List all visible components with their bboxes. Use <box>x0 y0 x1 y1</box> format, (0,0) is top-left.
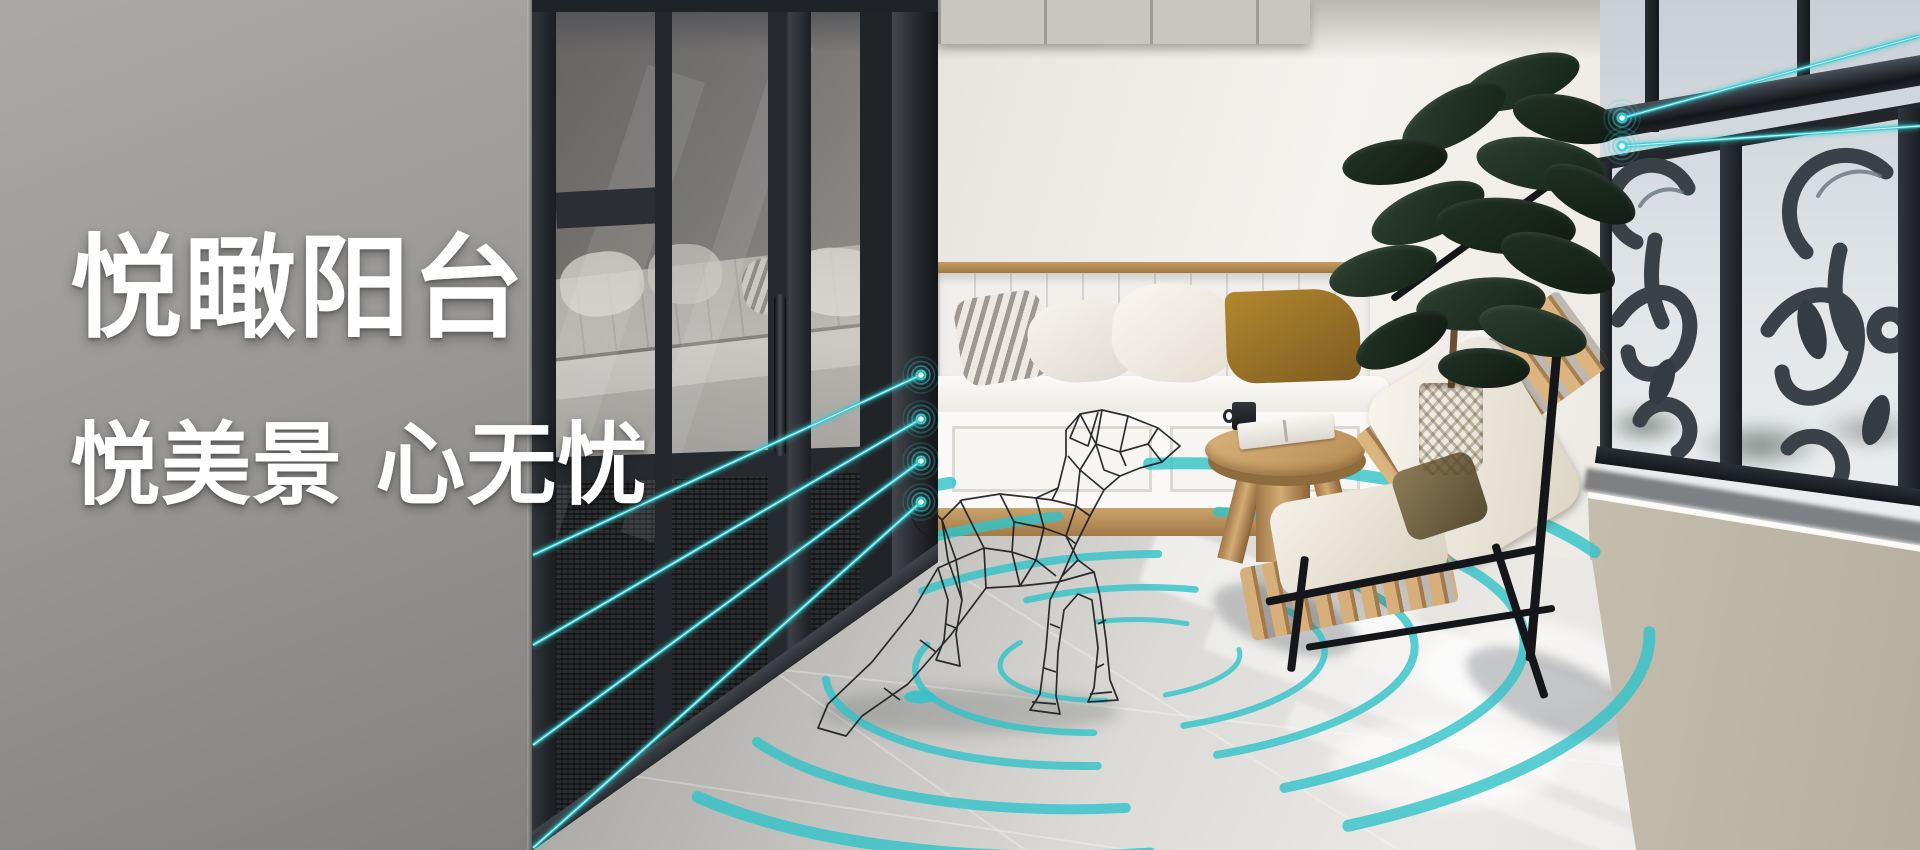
balcony-banner: 悦瞰阳台 悦美景 心无忧 <box>0 0 1920 850</box>
headline-block: 悦瞰阳台 悦美景 心无忧 <box>0 0 1000 620</box>
headline-title: 悦瞰阳台 <box>70 198 526 360</box>
woven-basket-pot <box>1419 383 1483 475</box>
headline-subtitle: 悦美景 心无忧 <box>70 392 648 522</box>
sunlight-blob <box>1330 720 1560 810</box>
paneling-wood-rail <box>938 262 1370 273</box>
railing-post <box>1898 108 1920 500</box>
mustard-pillow <box>1224 288 1361 385</box>
dog-shadow <box>820 688 1120 734</box>
magazine-spine <box>1283 420 1289 442</box>
railing-post <box>1720 140 1742 470</box>
mug-handle <box>1223 409 1235 423</box>
white-pillow <box>1110 281 1239 385</box>
